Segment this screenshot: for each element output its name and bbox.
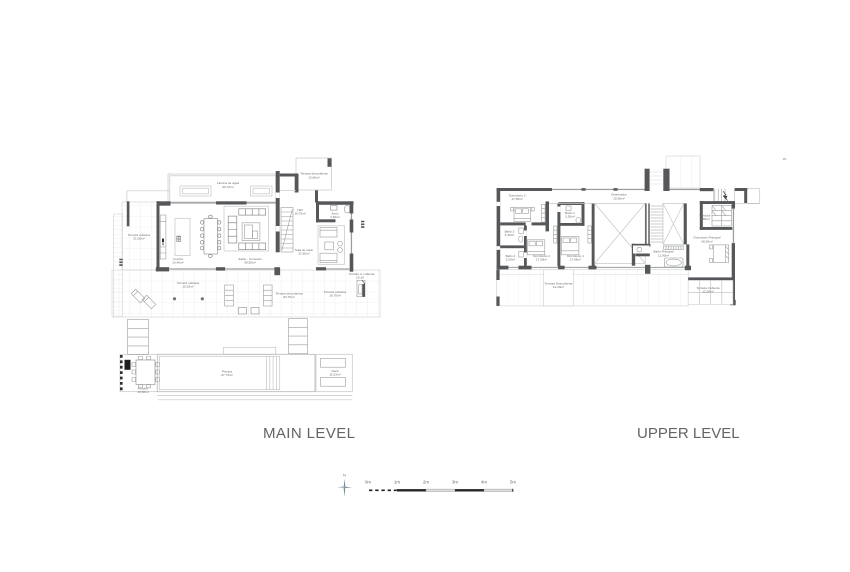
svg-text:MAIN LEVEL: MAIN LEVEL [263,425,355,442]
svg-text:21,05m²: 21,05m² [133,237,144,241]
svg-text:23,40m²: 23,40m² [172,261,183,265]
svg-text:11,00m²: 11,00m² [658,253,669,257]
svg-text:UPPER LEVEL: UPPER LEVEL [637,425,740,442]
svg-text:1m: 1m [394,480,400,485]
svg-text:28,20m²: 28,20m² [701,239,712,243]
svg-text:17,50m²: 17,50m² [536,258,547,262]
svg-text:11,03m²: 11,03m² [329,373,340,377]
svg-text:16,75m²: 16,75m² [294,212,305,216]
svg-text:67,74m²: 67,74m² [221,373,232,377]
svg-text:3,05m²: 3,05m² [506,258,516,262]
svg-text:3,50m²: 3,50m² [565,215,575,219]
svg-text:17,65m²: 17,65m² [511,197,522,201]
svg-text:4,60m²: 4,60m² [330,215,340,219]
svg-text:23,16: 23,16 [356,276,364,280]
svg-text:21,60m²: 21,60m² [298,252,309,256]
svg-text:20,90m²: 20,90m² [613,196,624,200]
svg-text:PL: PL [783,157,787,161]
svg-text:3,30m²: 3,30m² [505,233,515,237]
svg-text:9,65m²: 9,65m² [700,217,710,221]
svg-text:12,60m²: 12,60m² [308,176,319,180]
svg-text:N: N [343,472,346,477]
svg-text:0m: 0m [365,480,371,485]
svg-text:2m: 2m [423,480,429,485]
svg-text:84,70m²: 84,70m² [283,295,294,299]
svg-text:4m: 4m [481,480,487,485]
svg-text:60,76m²: 60,76m² [222,185,233,189]
svg-text:3m: 3m [452,480,458,485]
svg-text:12,00m²: 12,00m² [702,290,713,294]
svg-text:15,20m²: 15,20m² [182,285,193,289]
svg-text:5m: 5m [510,480,516,485]
svg-text:17,65m²: 17,65m² [570,258,581,262]
svg-text:13,58m²: 13,58m² [137,390,148,394]
svg-text:12,20m²: 12,20m² [553,285,564,289]
svg-text:56,50m²: 56,50m² [244,261,255,265]
svg-text:16,70m²: 16,70m² [329,294,340,298]
